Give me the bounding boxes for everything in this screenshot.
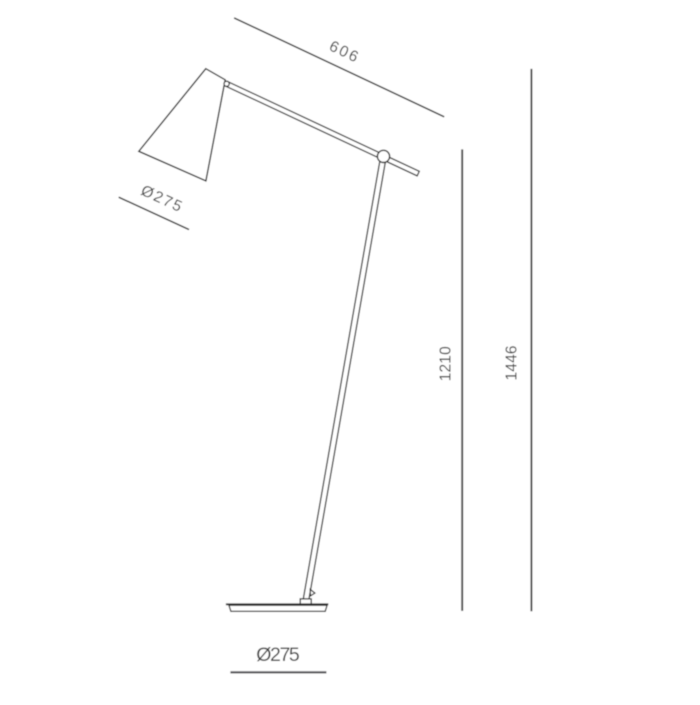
svg-text:1446: 1446	[504, 346, 521, 381]
svg-text:1210: 1210	[438, 346, 455, 381]
svg-text:Ø275: Ø275	[256, 644, 300, 666]
